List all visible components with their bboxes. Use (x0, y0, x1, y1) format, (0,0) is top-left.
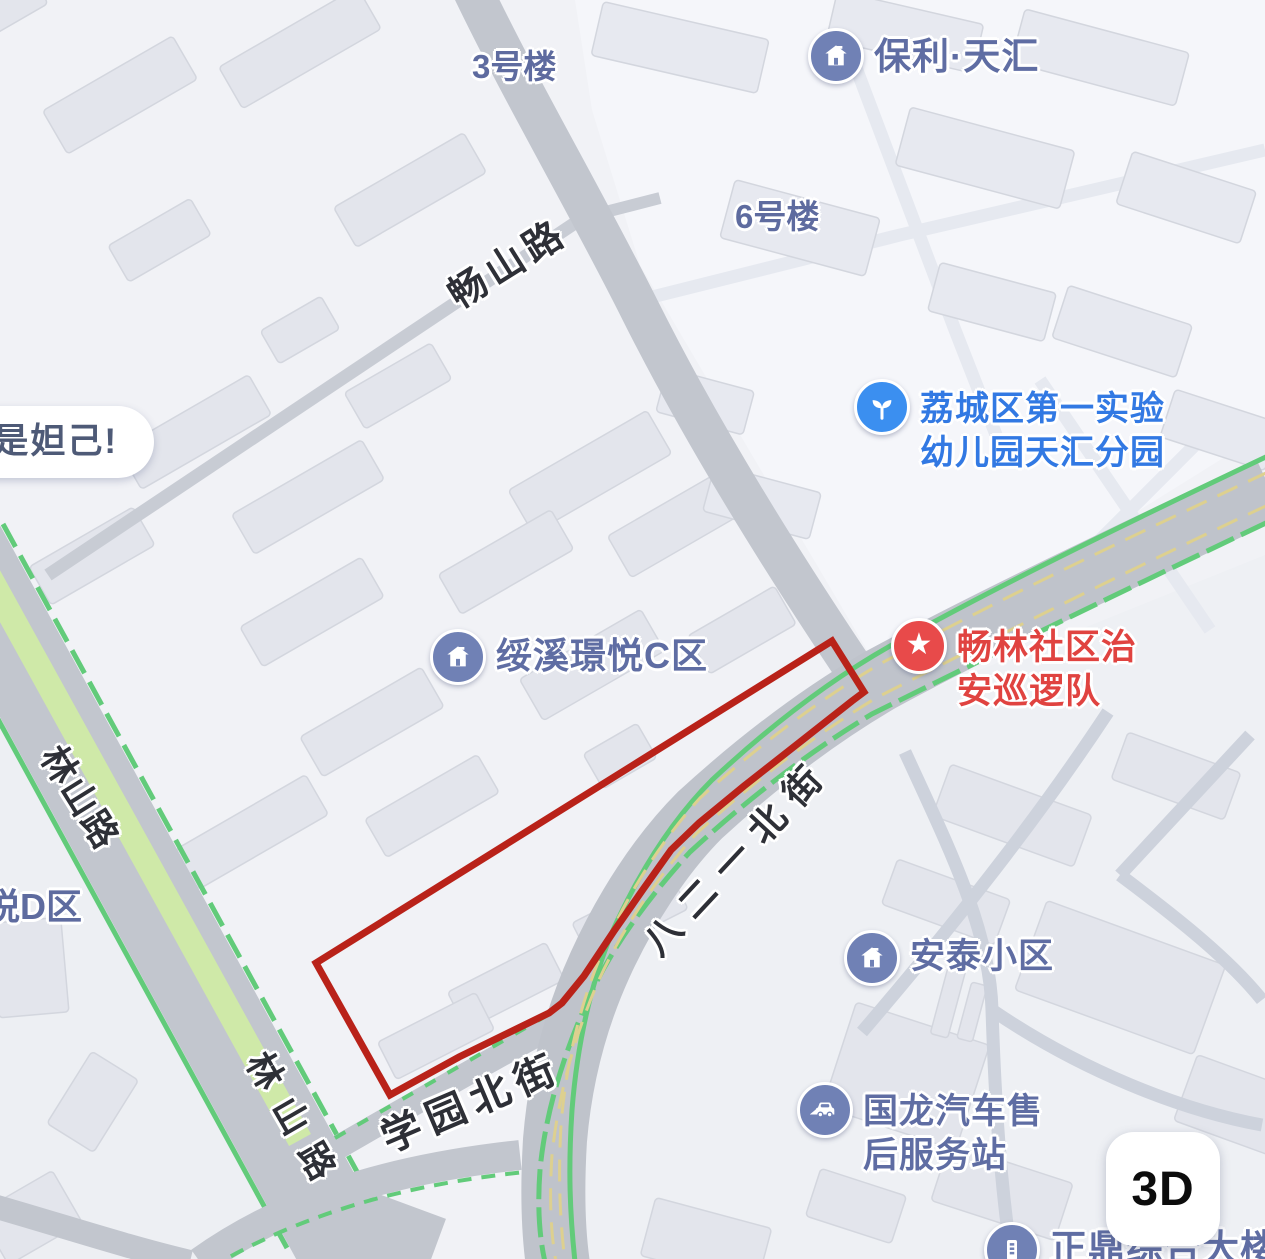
poi-label: 畅林社区治 安巡逻队 (957, 618, 1137, 714)
sprout-icon (854, 379, 910, 435)
3d-button-label: 3D (1131, 1162, 1194, 1217)
building-footprint (240, 557, 384, 667)
poi-baoli-tianhui[interactable]: 保利·天汇 (808, 28, 1039, 84)
building-footprint (0, 917, 69, 1018)
car-icon (797, 1082, 853, 1138)
building-footprint (0, 0, 48, 49)
building-footprint (344, 343, 452, 429)
building-footprint (219, 0, 382, 109)
poi-label-line1: 国龙汽车售 (863, 1090, 1043, 1134)
poi-patrol-team[interactable]: ★ 畅林社区治 安巡逻队 (891, 618, 1137, 714)
poi-suixi-jingyue-c[interactable]: 绥溪璟悦C区 (430, 629, 708, 685)
poi-label: 国龙汽车售 后服务站 (863, 1082, 1043, 1178)
poi-building-3[interactable]: 3号楼 (472, 40, 556, 88)
house-icon (844, 930, 900, 986)
poi-label: 绥溪璟悦C区 (496, 629, 708, 674)
poi-label-line2: 安巡逻队 (957, 670, 1137, 714)
poi-label-line2: 后服务站 (863, 1134, 1043, 1178)
poi-label: 荔城区第一实验 幼儿园天汇分园 (920, 379, 1165, 475)
house-icon (430, 629, 486, 685)
building-icon (984, 1222, 1040, 1259)
building-footprint (365, 754, 500, 857)
poi-label-line1: 畅林社区治 (957, 626, 1137, 670)
building-footprint (334, 133, 487, 248)
building-footprint (438, 510, 574, 615)
building-footprint (300, 667, 444, 777)
building-footprint (108, 198, 211, 282)
poi-speech-bubble[interactable]: 是妲己! (0, 406, 154, 478)
speech-bubble-text: 是妲己! (0, 422, 118, 461)
poi-yue-d-district[interactable]: 悦D区 (0, 878, 82, 930)
poi-label: 保利·天汇 (874, 28, 1039, 75)
building-footprint (176, 775, 329, 890)
poi-building-6[interactable]: 6号楼 (735, 190, 819, 238)
map-canvas[interactable]: 畅山路 林山路 林山路 八二一北街 学园北街 3号楼 6号楼 悦D区 保利·天汇… (0, 0, 1265, 1259)
poi-label-line2: 幼儿园天汇分园 (920, 431, 1165, 475)
poi-label-line1: 荔城区第一实验 (920, 387, 1165, 431)
house-icon (808, 28, 864, 84)
building-footprint (260, 296, 340, 364)
poi-kindergarten[interactable]: 荔城区第一实验 幼儿园天汇分园 (854, 379, 1165, 475)
poi-guolong[interactable]: 国龙汽车售 后服务站 (797, 1082, 1043, 1178)
star-glyph: ★ (906, 630, 933, 660)
star-icon: ★ (891, 618, 947, 674)
building-footprint (43, 36, 198, 154)
poi-label: 安泰小区 (910, 930, 1054, 974)
3d-toggle-button[interactable]: 3D (1106, 1132, 1220, 1246)
poi-antai[interactable]: 安泰小区 (844, 930, 1054, 986)
building-footprint (232, 440, 385, 555)
